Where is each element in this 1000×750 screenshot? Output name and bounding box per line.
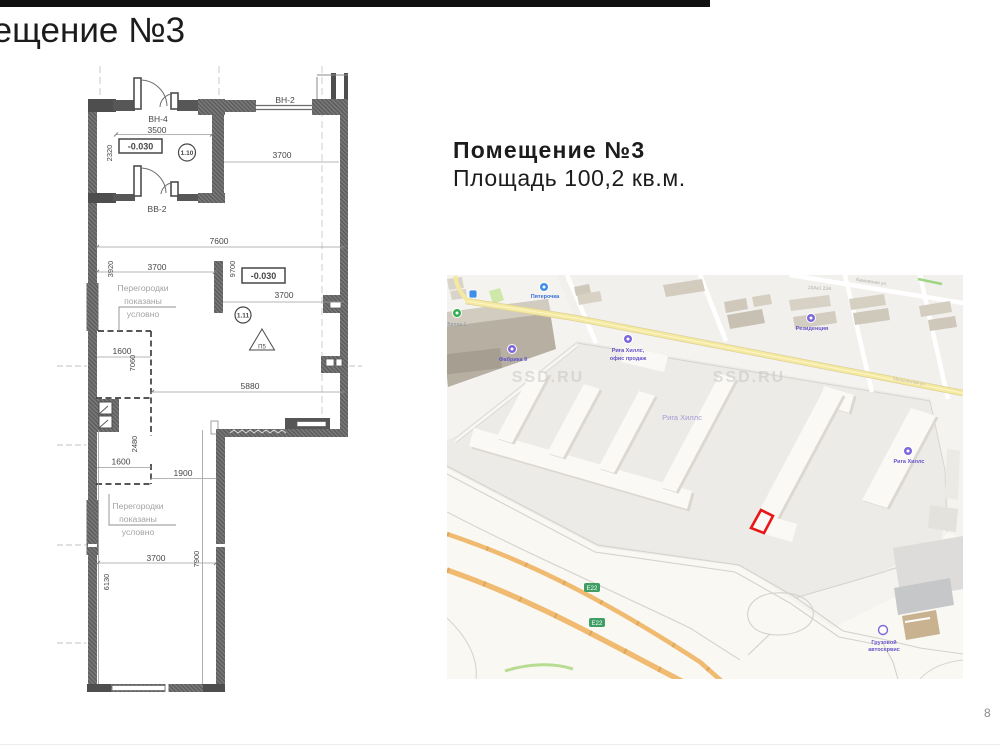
svg-text:6130: 6130 [102, 574, 111, 591]
svg-text:E22: E22 [592, 621, 603, 627]
svg-text:показаны: показаны [124, 296, 162, 306]
svg-text:Пятерочка: Пятерочка [531, 294, 560, 300]
svg-text:1600: 1600 [113, 346, 132, 356]
svg-text:-0.030: -0.030 [251, 271, 277, 281]
svg-text:E22: E22 [587, 586, 598, 592]
svg-text:1.10: 1.10 [181, 150, 194, 157]
svg-text:ВН-4: ВН-4 [148, 114, 168, 124]
svg-text:7600: 7600 [210, 236, 229, 246]
svg-text:-0.030: -0.030 [128, 142, 154, 152]
svg-text:1900: 1900 [174, 468, 193, 478]
svg-text:2320: 2320 [105, 145, 114, 162]
svg-text:9700: 9700 [228, 261, 237, 278]
svg-text:Грузовой: Грузовой [871, 639, 896, 646]
svg-text:ВН-2: ВН-2 [275, 95, 295, 105]
svg-text:3700: 3700 [273, 150, 292, 160]
svg-text:3700: 3700 [275, 290, 294, 300]
svg-text:ВВ-2: ВВ-2 [148, 204, 167, 214]
svg-text:2480: 2480 [130, 436, 139, 453]
svg-text:автосервис: автосервис [868, 647, 900, 653]
svg-text:7900: 7900 [192, 551, 201, 568]
svg-text:офис продаж: офис продаж [610, 355, 647, 362]
svg-text:Рига Хиллс: Рига Хиллс [894, 459, 925, 465]
svg-text:показаны: показаны [119, 514, 157, 524]
svg-text:Рига Хиллс: Рига Хиллс [662, 413, 702, 422]
svg-text:Фабрика 9: Фабрика 9 [499, 356, 527, 363]
svg-text:условно: условно [127, 309, 160, 319]
svg-text:Перегородки: Перегородки [117, 283, 168, 293]
svg-text:3500: 3500 [148, 125, 167, 135]
svg-text:ус Вилла 1: ус Вилла 1 [447, 322, 466, 328]
svg-text:Резиденция: Резиденция [796, 326, 829, 332]
svg-text:условно: условно [122, 527, 155, 537]
svg-text:23Ак1 23А: 23Ак1 23А [808, 285, 832, 292]
svg-text:SSD.RU: SSD.RU [713, 369, 785, 386]
svg-text:3700: 3700 [148, 262, 167, 272]
svg-text:5880: 5880 [241, 381, 260, 391]
svg-text:1600: 1600 [112, 457, 131, 467]
svg-text:1.11: 1.11 [237, 313, 250, 320]
svg-text:7060: 7060 [128, 355, 137, 372]
svg-text:П5: П5 [258, 345, 266, 351]
svg-text:SSD.RU: SSD.RU [512, 369, 584, 386]
svg-text:Рига Хиллс,: Рига Хиллс, [612, 348, 645, 354]
svg-text:3700: 3700 [147, 553, 166, 563]
svg-text:Перегородки: Перегородки [112, 501, 163, 511]
svg-text:3920: 3920 [106, 261, 115, 278]
